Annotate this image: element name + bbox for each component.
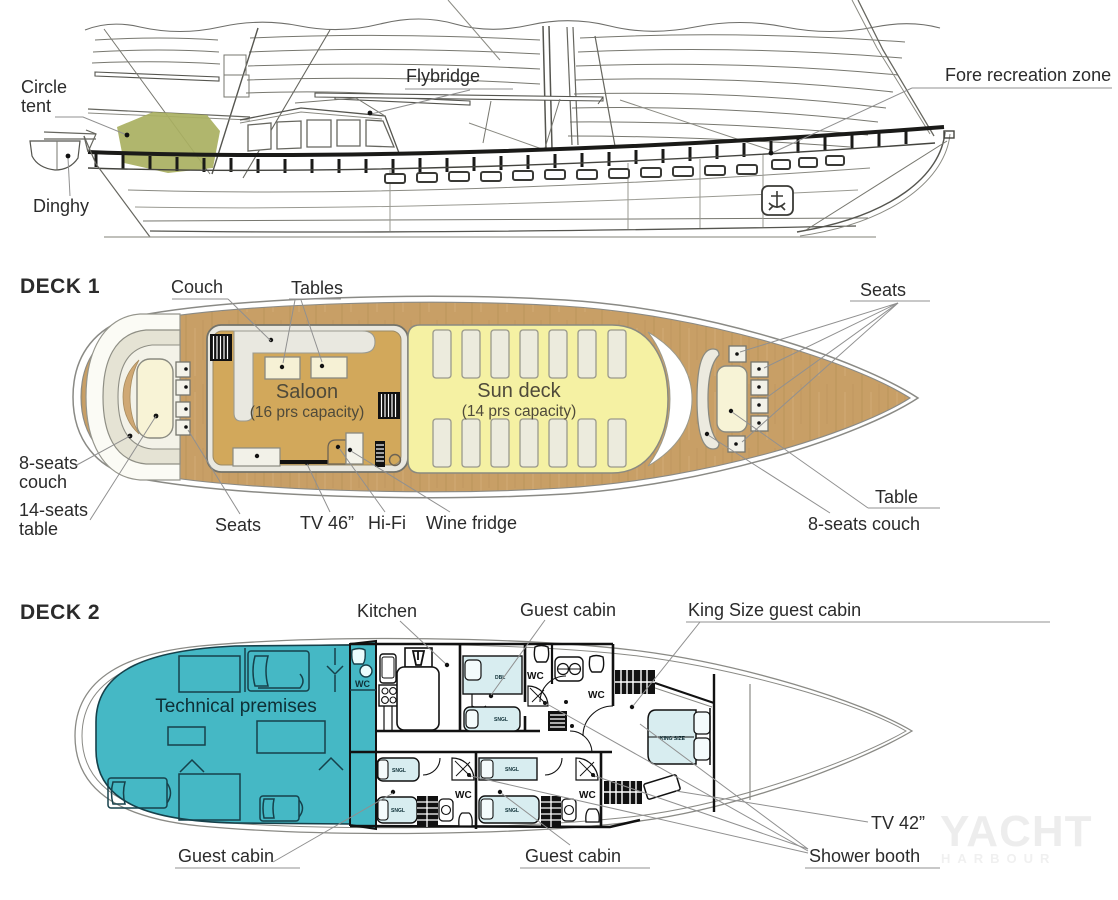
- svg-text:Circle: Circle: [21, 77, 67, 97]
- svg-text:Sun deck: Sun deck: [477, 380, 561, 402]
- svg-text:SNGL: SNGL: [392, 768, 406, 774]
- svg-text:DECK 1: DECK 1: [20, 275, 100, 298]
- svg-text:8-seats: 8-seats: [19, 453, 78, 473]
- svg-text:WC: WC: [355, 679, 370, 689]
- svg-text:King Size guest cabin: King Size guest cabin: [688, 600, 861, 620]
- svg-text:Wine fridge: Wine fridge: [426, 513, 517, 533]
- svg-text:WC: WC: [527, 671, 544, 682]
- svg-text:Couch: Couch: [171, 277, 223, 297]
- svg-text:Shower booth: Shower booth: [809, 846, 920, 866]
- svg-text:(14 prs capacity): (14 prs capacity): [462, 403, 577, 420]
- svg-text:Guest cabin: Guest cabin: [178, 846, 274, 866]
- svg-text:8-seats couch: 8-seats couch: [808, 514, 920, 534]
- svg-text:SNGL: SNGL: [505, 767, 519, 773]
- svg-text:KING SIZE: KING SIZE: [660, 736, 686, 742]
- svg-text:SNGL: SNGL: [505, 808, 519, 814]
- svg-text:WC: WC: [579, 790, 596, 801]
- svg-text:DECK 2: DECK 2: [20, 601, 100, 624]
- svg-text:(16 prs capacity): (16 prs capacity): [250, 404, 365, 421]
- svg-text:TV 42”: TV 42”: [871, 813, 925, 833]
- svg-text:WC: WC: [455, 790, 472, 801]
- svg-text:Kitchen: Kitchen: [357, 601, 417, 621]
- svg-text:Hi-Fi: Hi-Fi: [368, 513, 406, 533]
- svg-text:tent: tent: [21, 96, 51, 116]
- svg-text:couch: couch: [19, 472, 67, 492]
- svg-text:Guest cabin: Guest cabin: [525, 846, 621, 866]
- svg-text:Dinghy: Dinghy: [33, 196, 89, 216]
- svg-text:YACHT: YACHT: [940, 807, 1093, 856]
- svg-text:WC: WC: [588, 690, 605, 701]
- svg-text:table: table: [19, 519, 58, 539]
- svg-text:Technical premises: Technical premises: [155, 696, 317, 717]
- svg-text:HARBOUR: HARBOUR: [941, 851, 1056, 866]
- svg-text:SNGL: SNGL: [391, 808, 405, 814]
- svg-text:Seats: Seats: [860, 280, 906, 300]
- svg-text:Tables: Tables: [291, 278, 343, 298]
- svg-text:Flybridge: Flybridge: [406, 66, 480, 86]
- svg-text:Table: Table: [875, 487, 918, 507]
- svg-text:Seats: Seats: [215, 515, 261, 535]
- svg-text:TV 46”: TV 46”: [300, 513, 354, 533]
- svg-text:Guest cabin: Guest cabin: [520, 600, 616, 620]
- svg-text:Saloon: Saloon: [276, 381, 338, 403]
- svg-text:SNGL: SNGL: [494, 717, 508, 723]
- svg-text:14-seats: 14-seats: [19, 500, 88, 520]
- svg-text:Fore recreation zone: Fore recreation zone: [945, 65, 1111, 85]
